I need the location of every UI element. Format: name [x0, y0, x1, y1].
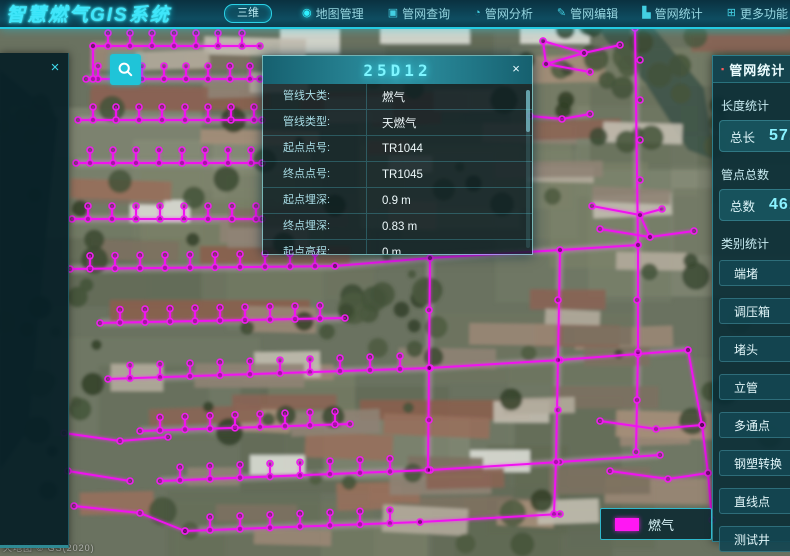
popup-row-label: 管线类型:	[263, 110, 367, 135]
popup-row-value: 天燃气	[367, 115, 417, 131]
popup-row: 起点点号: TR1044	[263, 136, 532, 162]
popup-row-value: 燃气	[367, 89, 405, 105]
map-legend: 燃气	[600, 508, 712, 540]
more-functions-icon: ⊞	[727, 8, 736, 19]
popup-row-label: 终点点号:	[263, 162, 367, 187]
menu-item-label: 管网统计	[655, 5, 703, 22]
stats-panel-header: ▪ 管网统计	[713, 56, 790, 83]
popup-row-value: 0 m	[367, 247, 401, 255]
stat-name: 总长	[730, 127, 755, 146]
pipe-query-icon: ▣	[388, 8, 398, 19]
menu-item-pipe-query[interactable]: ▣ 管网查询	[388, 5, 450, 22]
popup-row-label: 管线大类:	[263, 84, 367, 109]
popup-row: 终点埋深: 0.83 m	[263, 214, 532, 240]
category-button[interactable]: 立管	[719, 374, 790, 400]
mode-3d-button[interactable]: 三维	[224, 4, 272, 23]
popup-row-label: 起点点号:	[263, 136, 367, 161]
popup-row-value: TR1045	[367, 169, 423, 181]
popup-row-value: 0.9 m	[367, 195, 411, 207]
category-button[interactable]: 钢塑转换	[719, 450, 790, 476]
search-icon	[117, 61, 134, 78]
popup-row: 起点高程: 0 m	[263, 240, 532, 254]
popup-body: 管线大类: 燃气 管线类型: 天燃气 起点点号: TR1044 终点点号: TR…	[263, 84, 532, 254]
popup-row-label: 起点埋深:	[263, 188, 367, 213]
category-button[interactable]: 堵头	[719, 336, 790, 362]
popup-row-label: 起点高程:	[263, 240, 367, 254]
category-button[interactable]: 调压箱	[719, 298, 790, 324]
point-count-label: 管点总数	[721, 166, 790, 183]
stats-panel-title: 管网统计	[729, 60, 785, 79]
menu-item-label: 管网查询	[402, 5, 450, 22]
menu-item-pipe-analysis[interactable]: ◔ 管网分析	[474, 5, 533, 22]
popup-title: 25D12	[363, 61, 431, 80]
map-manage-icon: ◉	[302, 8, 312, 19]
main-menu: ◉ 地图管理 ▣ 管网查询 ◔ 管网分析 ✎ 管网编辑 ▙ 管网统计 ⊞ 更多功…	[302, 0, 788, 27]
total-points-stat: 总数 461	[719, 189, 790, 221]
category-list: 端堵 调压箱 堵头 立管 多通点 钢塑转换 直线点 测试井	[713, 260, 790, 552]
popup-row-value: TR1044	[367, 143, 423, 155]
legend-label: 燃气	[648, 515, 674, 534]
popup-row: 管线类型: 天燃气	[263, 110, 532, 136]
feature-info-popup: 25D12 × 管线大类: 燃气 管线类型: 天燃气 起点点号: TR1044 …	[262, 55, 533, 255]
total-length-stat: 总长 57.48	[719, 120, 790, 152]
search-button[interactable]	[110, 54, 141, 85]
menu-item-label: 更多功能	[740, 5, 788, 22]
pipe-edit-icon: ✎	[557, 8, 566, 19]
left-tool-panel: ×	[0, 53, 69, 548]
category-button[interactable]: 直线点	[719, 488, 790, 514]
menu-item-map-manage[interactable]: ◉ 地图管理	[302, 5, 364, 22]
stat-name: 总数	[730, 196, 755, 215]
menu-item-pipe-stats[interactable]: ▙ 管网统计	[642, 5, 702, 22]
top-navigation-bar: 智慧燃气GIS系统 三维 ◉ 地图管理 ▣ 管网查询 ◔ 管网分析 ✎ 管网编辑…	[0, 0, 790, 29]
bullet-icon: ▪	[721, 64, 724, 74]
pipe-stats-icon: ▙	[642, 8, 650, 19]
gas-pipeline-swatch	[615, 518, 639, 531]
popup-close-icon[interactable]: ×	[508, 61, 524, 77]
left-panel-close-icon[interactable]: ×	[46, 59, 64, 77]
popup-row-label: 终点埋深:	[263, 214, 367, 239]
stat-value: 57.48	[769, 127, 790, 145]
category-stat-label: 类别统计	[721, 235, 790, 252]
popup-row: 管线大类: 燃气	[263, 84, 532, 110]
pipe-analysis-icon: ◔	[474, 8, 481, 19]
menu-item-pipe-edit[interactable]: ✎ 管网编辑	[557, 5, 618, 22]
popup-row: 起点埋深: 0.9 m	[263, 188, 532, 214]
screen: 天地图 © GS(2020) 智慧燃气GIS系统 三维 ◉ 地图管理 ▣ 管网查…	[0, 0, 790, 556]
popup-row: 终点点号: TR1045	[263, 162, 532, 188]
menu-item-more-functions[interactable]: ⊞ 更多功能	[727, 5, 788, 22]
category-button[interactable]: 测试井	[719, 526, 790, 552]
menu-item-label: 管网编辑	[570, 5, 618, 22]
stat-value: 461	[769, 196, 790, 214]
menu-item-label: 地图管理	[316, 5, 364, 22]
app-title: 智慧燃气GIS系统	[6, 0, 171, 27]
popup-scrollbar[interactable]	[526, 90, 530, 248]
menu-item-label: 管网分析	[485, 5, 533, 22]
network-statistics-panel: ▪ 管网统计 长度统计 总长 57.48 管点总数 总数 461 类别统计 端堵…	[712, 55, 790, 542]
category-button[interactable]: 端堵	[719, 260, 790, 286]
popup-scrollbar-thumb[interactable]	[526, 90, 530, 132]
length-stat-label: 长度统计	[721, 97, 790, 114]
category-button[interactable]: 多通点	[719, 412, 790, 438]
popup-header: 25D12 ×	[263, 56, 532, 84]
popup-row-value: 0.83 m	[367, 221, 417, 233]
